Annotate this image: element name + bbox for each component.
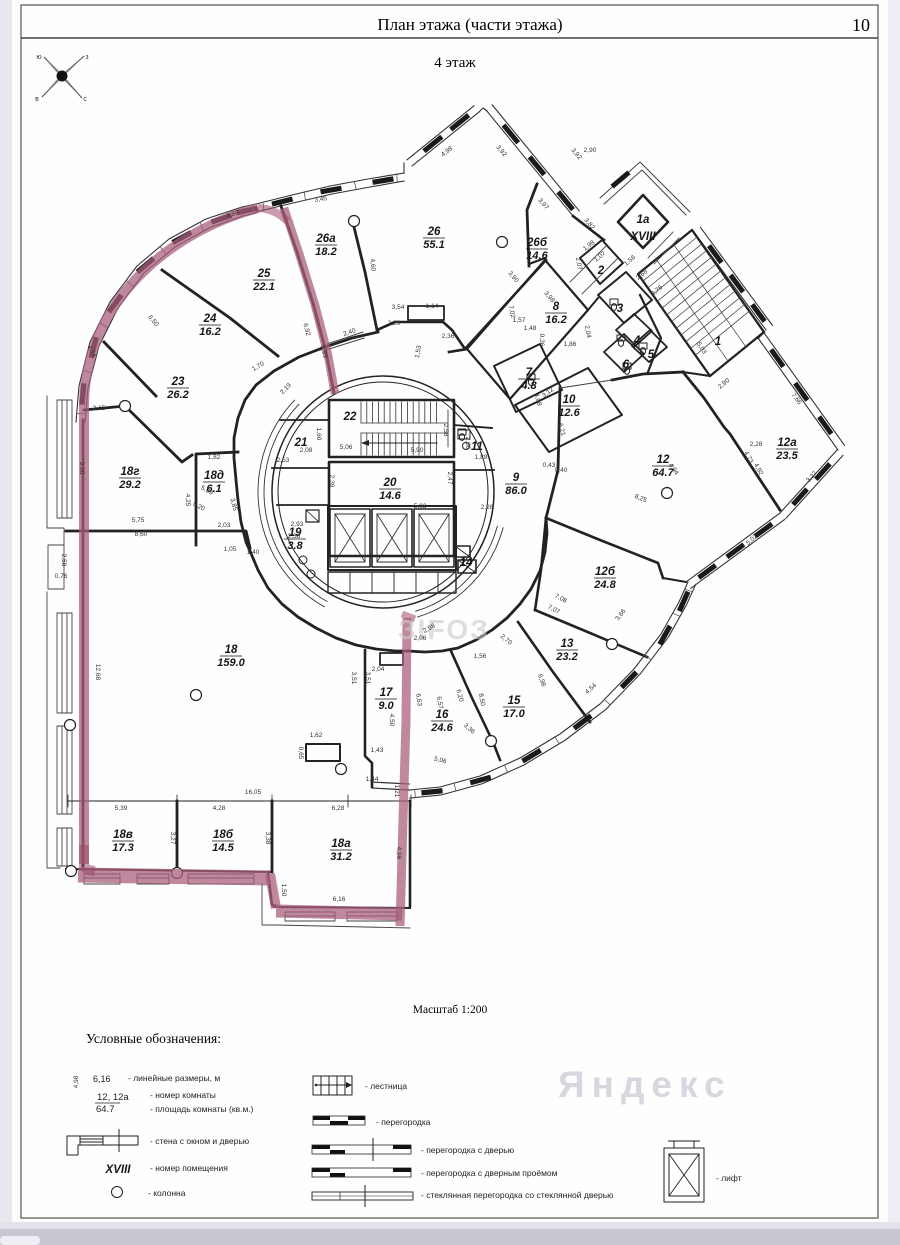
- svg-text:0,43: 0,43: [543, 462, 556, 469]
- svg-text:1,60: 1,60: [315, 428, 322, 441]
- svg-text:- перегородка: - перегородка: [376, 1117, 431, 1127]
- svg-text:2,28: 2,28: [481, 504, 494, 511]
- svg-text:2,08: 2,08: [300, 447, 313, 454]
- svg-text:9: 9: [513, 472, 520, 484]
- svg-text:3,51: 3,51: [350, 672, 357, 685]
- svg-text:16: 16: [436, 709, 449, 721]
- svg-text:4,50: 4,50: [388, 714, 395, 727]
- svg-text:2,58: 2,58: [442, 424, 449, 437]
- svg-text:64.7: 64.7: [96, 1104, 115, 1115]
- svg-text:1а: 1а: [637, 214, 650, 226]
- svg-text:9,00: 9,00: [78, 462, 85, 475]
- svg-text:12б: 12б: [595, 566, 616, 578]
- svg-text:4.8: 4.8: [520, 380, 537, 392]
- svg-text:1,62: 1,62: [310, 732, 323, 739]
- svg-text:22.1: 22.1: [252, 281, 274, 293]
- svg-text:2,28: 2,28: [750, 441, 763, 448]
- svg-text:2,38: 2,38: [288, 533, 301, 540]
- svg-text:55.1: 55.1: [423, 239, 444, 251]
- svg-text:- перегородка с дверью: - перегородка с дверью: [421, 1145, 515, 1155]
- svg-text:5: 5: [648, 349, 655, 361]
- svg-text:1,50: 1,50: [280, 884, 287, 897]
- svg-text:3,27: 3,27: [169, 832, 176, 845]
- svg-text:- номер комнаты: - номер комнаты: [150, 1090, 216, 1100]
- svg-text:2,58: 2,58: [60, 554, 67, 567]
- svg-text:14: 14: [460, 557, 473, 569]
- svg-text:1,82: 1,82: [208, 454, 221, 461]
- svg-text:5,90: 5,90: [411, 447, 424, 454]
- svg-text:14.6: 14.6: [379, 490, 401, 502]
- svg-text:10: 10: [852, 15, 870, 35]
- svg-text:- площадь комнаты (кв.м.): - площадь комнаты (кв.м.): [150, 1104, 254, 1114]
- svg-text:3: 3: [617, 303, 624, 315]
- svg-text:17.3: 17.3: [112, 842, 133, 854]
- svg-text:4,96: 4,96: [395, 847, 402, 860]
- svg-text:3,38: 3,38: [264, 832, 271, 845]
- svg-text:Условные обозначения:: Условные обозначения:: [86, 1031, 221, 1046]
- svg-text:5,06: 5,06: [340, 444, 353, 451]
- svg-text:2: 2: [597, 265, 605, 277]
- svg-text:6,28: 6,28: [332, 805, 345, 812]
- svg-text:Масштаб 1:200: Масштаб 1:200: [413, 1004, 488, 1016]
- svg-text:26.2: 26.2: [166, 389, 188, 401]
- svg-text:20: 20: [383, 477, 397, 489]
- svg-text:XVIII: XVIII: [630, 231, 657, 243]
- svg-text:2,39: 2,39: [328, 475, 335, 488]
- svg-text:23.2: 23.2: [555, 651, 577, 663]
- svg-text:0,40: 0,40: [555, 467, 568, 474]
- svg-text:6: 6: [623, 359, 630, 371]
- svg-text:6,16: 6,16: [93, 1074, 111, 1084]
- svg-text:3,54: 3,54: [392, 304, 405, 311]
- svg-text:6,16: 6,16: [333, 896, 346, 903]
- svg-text:- лестница: - лестница: [365, 1081, 407, 1091]
- svg-text:2,06: 2,06: [414, 635, 427, 642]
- svg-text:- лифт: - лифт: [716, 1173, 742, 1183]
- svg-text:Яндекс: Яндекс: [558, 1064, 732, 1105]
- svg-text:4,60: 4,60: [368, 258, 376, 272]
- svg-text:15: 15: [508, 695, 521, 707]
- svg-text:16.2: 16.2: [199, 326, 220, 338]
- svg-text:18б: 18б: [213, 829, 234, 841]
- svg-text:1,21: 1,21: [393, 785, 400, 798]
- svg-text:1,86: 1,86: [564, 341, 577, 348]
- svg-text:1,48: 1,48: [524, 325, 537, 332]
- svg-text:9.0: 9.0: [378, 700, 394, 712]
- svg-text:25: 25: [257, 268, 271, 280]
- svg-text:- колонна: - колонна: [148, 1188, 186, 1198]
- svg-text:2,06: 2,06: [464, 437, 471, 450]
- svg-text:1,56: 1,56: [474, 653, 487, 660]
- svg-text:24.8: 24.8: [593, 579, 616, 591]
- svg-text:18в: 18в: [113, 829, 133, 841]
- svg-text:31.2: 31.2: [330, 851, 351, 863]
- svg-text:2,36: 2,36: [442, 333, 455, 340]
- svg-text:0,76: 0,76: [55, 573, 68, 580]
- svg-text:1: 1: [715, 336, 721, 348]
- svg-text:26а: 26а: [315, 233, 336, 245]
- svg-text:5,93: 5,93: [414, 503, 427, 510]
- svg-text:ю: ю: [36, 54, 41, 61]
- svg-text:8: 8: [553, 301, 560, 313]
- svg-text:1,05: 1,05: [224, 546, 237, 553]
- svg-text:0,65: 0,65: [297, 747, 304, 760]
- svg-text:16.2: 16.2: [545, 314, 566, 326]
- svg-text:24: 24: [203, 313, 217, 325]
- svg-text:16,05: 16,05: [245, 789, 262, 796]
- svg-text:18д: 18д: [204, 470, 224, 482]
- svg-text:2,93: 2,93: [291, 521, 304, 528]
- svg-text:4,25: 4,25: [184, 494, 191, 507]
- svg-text:18г: 18г: [121, 466, 140, 478]
- svg-text:159.0: 159.0: [217, 657, 245, 669]
- svg-text:10: 10: [563, 394, 576, 406]
- svg-text:- линейные размеры, м: - линейные размеры, м: [128, 1073, 220, 1083]
- svg-text:18а: 18а: [331, 838, 351, 850]
- svg-text:2,47: 2,47: [446, 472, 453, 485]
- svg-text:18: 18: [225, 644, 238, 656]
- svg-text:12.6: 12.6: [558, 407, 580, 419]
- svg-text:1,89: 1,89: [475, 454, 488, 461]
- svg-text:4 этаж: 4 этаж: [434, 55, 476, 71]
- svg-text:2,29: 2,29: [388, 320, 401, 327]
- svg-text:17: 17: [380, 687, 393, 699]
- svg-text:2,04: 2,04: [372, 666, 385, 673]
- svg-text:- стеклянная перегородка со ст: - стеклянная перегородка со стеклянной д…: [421, 1190, 614, 1200]
- svg-text:23: 23: [171, 376, 185, 388]
- svg-text:24.6: 24.6: [430, 722, 453, 734]
- svg-text:- номер помещения: - номер помещения: [150, 1163, 228, 1173]
- svg-text:2,03: 2,03: [218, 522, 231, 529]
- svg-text:в: в: [35, 96, 39, 103]
- svg-text:1,44: 1,44: [366, 776, 379, 783]
- svg-text:с: с: [83, 96, 87, 103]
- svg-text:5,75: 5,75: [132, 517, 145, 524]
- svg-text:8,60: 8,60: [135, 531, 148, 538]
- svg-text:17.0: 17.0: [503, 708, 525, 720]
- svg-text:26б: 26б: [526, 237, 548, 249]
- svg-text:0,36: 0,36: [538, 334, 545, 347]
- svg-text:12а: 12а: [777, 437, 797, 449]
- svg-text:1,40: 1,40: [247, 549, 260, 556]
- svg-text:11: 11: [471, 441, 483, 453]
- svg-text:3.8: 3.8: [287, 540, 303, 552]
- svg-text:26: 26: [427, 226, 441, 238]
- svg-text:- стена с окном и дверью: - стена с окном и дверью: [150, 1136, 250, 1146]
- svg-text:14.5: 14.5: [212, 842, 234, 854]
- svg-text:1,14: 1,14: [426, 303, 439, 310]
- svg-text:29.2: 29.2: [118, 479, 140, 491]
- svg-text:План этажа (части этажа): План этажа (части этажа): [377, 15, 562, 34]
- svg-text:12, 12а: 12, 12а: [97, 1092, 129, 1103]
- svg-text:23.5: 23.5: [775, 450, 798, 462]
- svg-text:XVIII: XVIII: [105, 1164, 132, 1176]
- svg-text:86.0: 86.0: [505, 485, 527, 497]
- svg-text:ЗIFОЗ: ЗIFОЗ: [398, 614, 490, 645]
- svg-text:2,15: 2,15: [93, 405, 106, 412]
- svg-text:12,68: 12,68: [94, 664, 101, 681]
- svg-text:22: 22: [343, 411, 357, 423]
- svg-text:5,39: 5,39: [115, 805, 128, 812]
- svg-text:з: з: [85, 54, 88, 61]
- svg-text:2,90: 2,90: [584, 147, 597, 154]
- svg-text:- перегородка с дверным проёмо: - перегородка с дверным проёмом: [421, 1168, 558, 1178]
- svg-text:4,98: 4,98: [73, 1075, 80, 1088]
- svg-text:1,43: 1,43: [371, 747, 384, 754]
- svg-text:3,51: 3,51: [364, 672, 371, 685]
- svg-text:2,53: 2,53: [277, 457, 290, 464]
- svg-text:4: 4: [633, 335, 641, 347]
- svg-text:18.2: 18.2: [315, 246, 336, 258]
- svg-text:14.6: 14.6: [526, 250, 548, 262]
- svg-text:7: 7: [526, 367, 533, 379]
- svg-text:1,57: 1,57: [513, 317, 526, 324]
- svg-text:13: 13: [561, 638, 574, 650]
- svg-text:4,28: 4,28: [213, 805, 226, 812]
